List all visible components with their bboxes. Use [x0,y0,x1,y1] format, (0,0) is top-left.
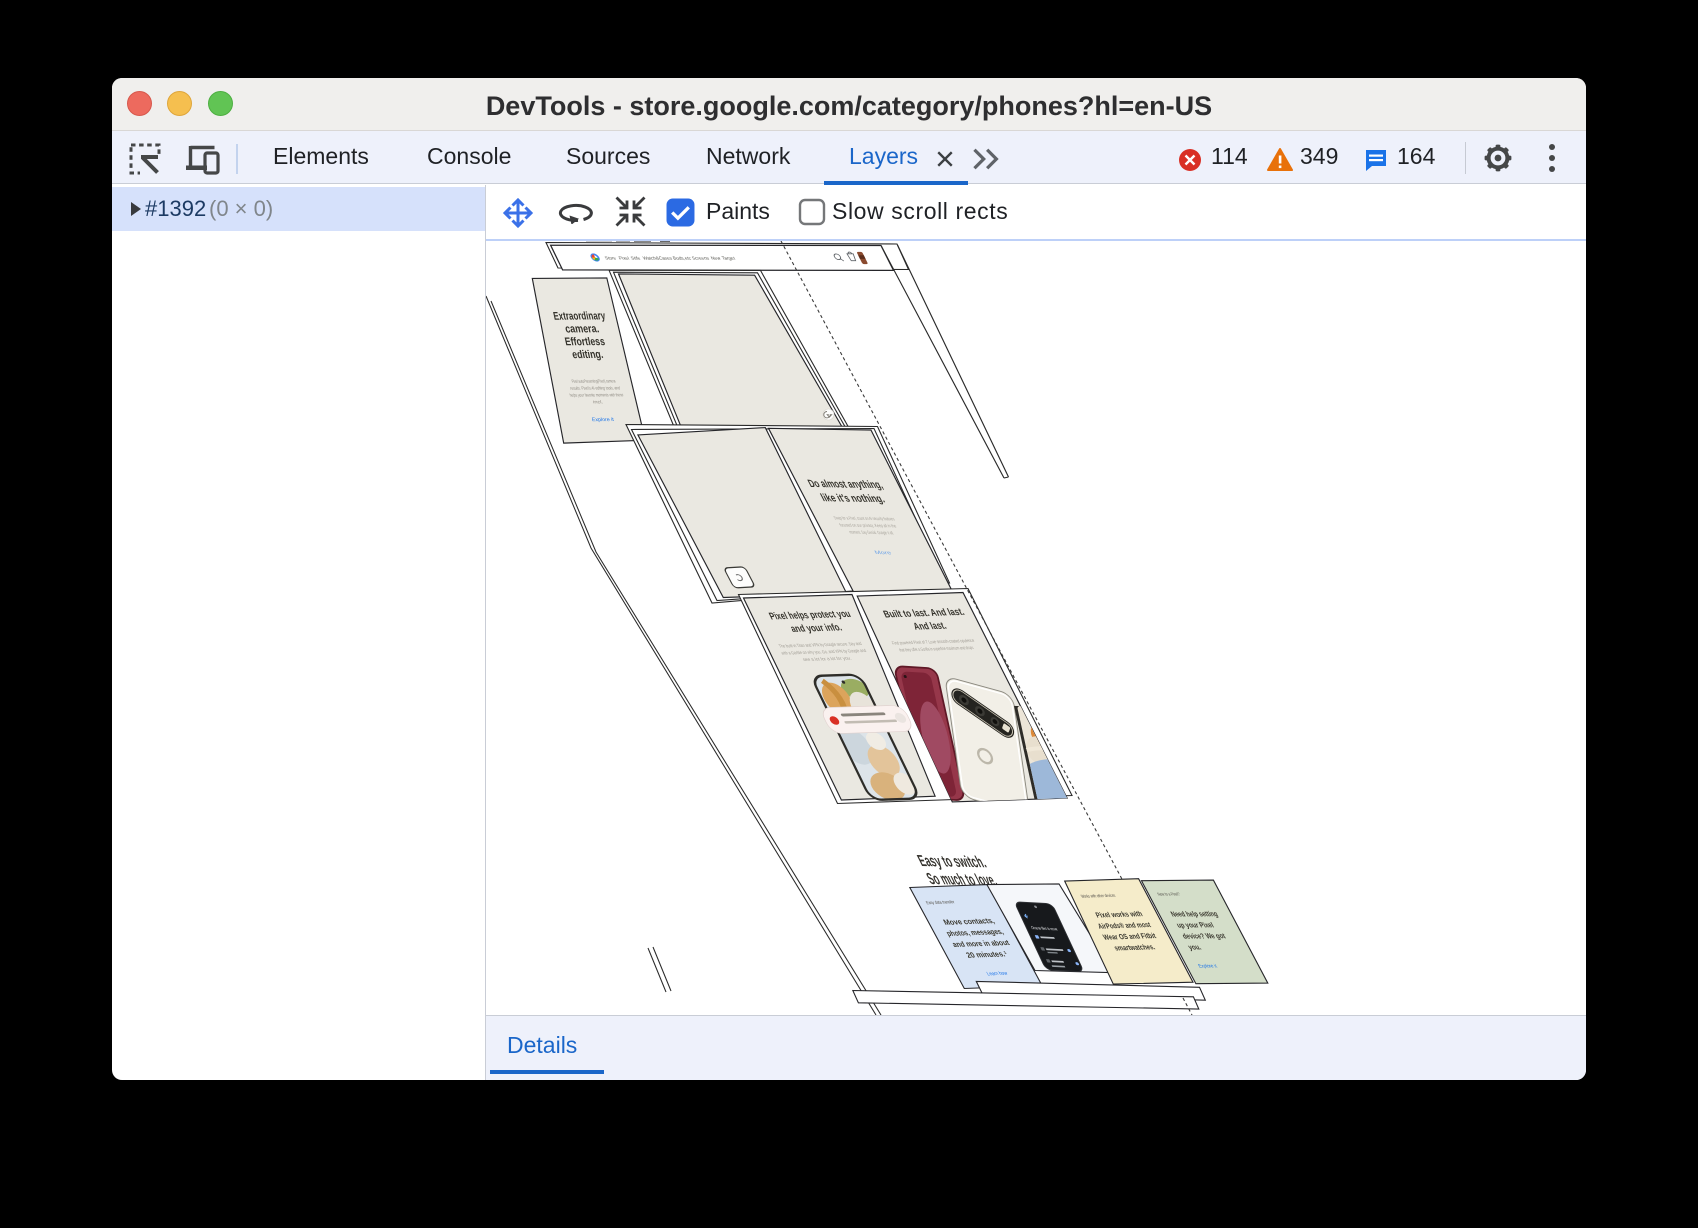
svg-text:smartwatches.: smartwatches. [1113,943,1157,953]
svg-text:Screens: Screens [691,256,711,262]
svg-text:editing.: editing. [571,349,604,361]
svg-text:moment. Say Genial. Google it: moment. Say Genial. Google it all. [848,530,895,536]
svg-text:Pixel autoPresenting(Pixel) ca: Pixel autoPresenting(Pixel) camera [571,379,616,384]
svg-text:Watch&Cases: Watch&Cases [642,256,674,262]
svg-text:device? We got: device? We got [1181,932,1228,941]
svg-text:New to a Pixel?: New to a Pixel? [1156,892,1181,897]
svg-text:Explore it: Explore it [1197,964,1218,970]
svg-text:Do almost anything,: Do almost anything, [806,479,885,492]
svg-text:results. Pixel's AI editing to: results. Pixel's AI editing tools, and [570,385,621,390]
svg-text:helps your favorite moments wi: helps your favorite moments with these [569,392,624,397]
svg-text:Buds,etc: Buds,etc [672,256,693,262]
svg-text:AirPods® and most: AirPods® and most [1096,920,1152,930]
svg-text:Extraordinary: Extraordinary [552,311,607,323]
svg-text:Need help setting: Need help setting [1169,910,1220,919]
svg-text:Effortless: Effortless [564,336,606,348]
svg-text:like it's nothing.: like it's nothing. [819,493,887,505]
svg-text:Swap for a Pixel, count on AI: Swap for a Pixel, count on AI security f… [833,516,897,523]
svg-text:and your info.: and your info. [789,623,844,635]
svg-text:focused on our privacy. Keep a: focused on our privacy. Keep all in the [838,523,897,530]
svg-text:And last.: And last. [912,621,949,633]
svg-text:Pixel works with: Pixel works with [1094,909,1144,919]
svg-text:20 minutes.¹: 20 minutes.¹ [965,950,1010,960]
svg-text:Easy to switch.: Easy to switch. [914,852,989,871]
svg-text:Learn how: Learn how [986,971,1009,977]
svg-text:Explore it: Explore it [591,417,615,423]
svg-text:Wear OS and Fitbit: Wear OS and Fitbit [1101,931,1157,941]
svg-text:up your Pixel: up your Pixel [1175,921,1215,930]
svg-text:More: More [874,550,893,556]
svg-text:incl.: incl. [593,399,604,404]
svg-text:camera.: camera. [564,323,600,335]
